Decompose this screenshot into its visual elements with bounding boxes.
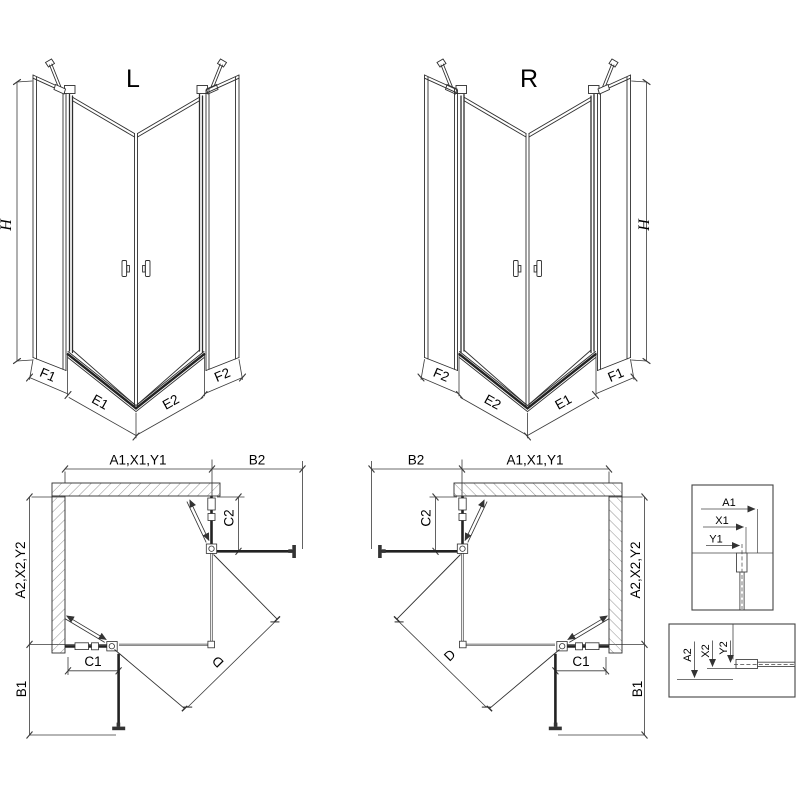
variant-right-label: R — [520, 65, 538, 93]
dim-e1-right: E1 — [552, 392, 574, 413]
dim-a1x1y1-left: A1,X1,Y1 — [109, 453, 166, 468]
dim-b2-left: B2 — [249, 453, 266, 468]
plan-view-right-geometry — [369, 460, 648, 739]
detail-dim-x2: X2 — [700, 644, 712, 657]
dim-e1-left: E1 — [89, 392, 111, 413]
dim-b1-right: B1 — [630, 681, 645, 698]
dim-a2x2y2-left: A2,X2,Y2 — [13, 541, 28, 598]
dim-e2-left: E2 — [160, 392, 182, 413]
dim-b1-left: B1 — [14, 681, 29, 698]
dim-e2-right: E2 — [482, 392, 504, 413]
dim-a2x2y2-right: A2,X2,Y2 — [628, 541, 643, 598]
dim-c2-left: C2 — [222, 509, 237, 526]
drawing-page: L H F1 E1 E2 F2 R H F2 E2 E1 F1 A1,X1,Y1… — [0, 0, 800, 800]
dim-height-right: H — [636, 218, 653, 232]
dim-c1-right: C1 — [572, 654, 589, 669]
dim-c2-right: C2 — [419, 509, 434, 526]
detail-dim-y2: Y2 — [718, 641, 730, 654]
variant-left-label: L — [126, 65, 140, 93]
dim-b2-right: B2 — [408, 453, 425, 468]
dim-d-left: D — [209, 653, 227, 671]
dim-c1-left: C1 — [84, 654, 101, 669]
dim-height-left: H — [0, 218, 15, 232]
detail-dim-a1: A1 — [722, 497, 735, 509]
dim-f2-right: F2 — [431, 365, 451, 385]
shower-enclosure-technical-drawing: L H F1 E1 E2 F2 R H F2 E2 E1 F1 A1,X1,Y1… — [0, 0, 800, 800]
dim-f2-left: F2 — [212, 365, 232, 385]
plan-view-left-geometry — [27, 460, 306, 739]
detail-dim-a2: A2 — [682, 648, 694, 661]
detail-dim-x1: X1 — [715, 515, 728, 527]
dim-a1x1y1-right: A1,X1,Y1 — [506, 453, 563, 468]
dim-d-right: D — [441, 646, 459, 664]
detail-dim-y1: Y1 — [709, 534, 722, 546]
